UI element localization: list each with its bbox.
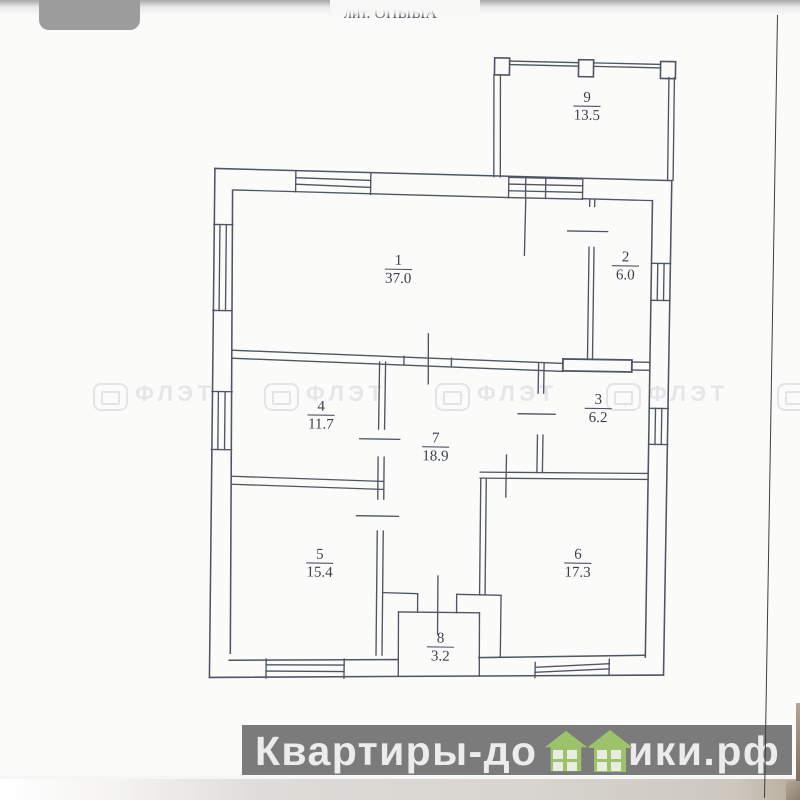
svg-text:1: 1 bbox=[395, 253, 403, 269]
svg-text:17.3: 17.3 bbox=[564, 564, 590, 580]
svg-text:8: 8 bbox=[437, 630, 445, 646]
svg-text:37.0: 37.0 bbox=[385, 271, 411, 287]
svg-text:4: 4 bbox=[317, 399, 325, 415]
svg-text:5: 5 bbox=[316, 547, 324, 563]
svg-text:6.0: 6.0 bbox=[616, 267, 635, 283]
svg-text:6: 6 bbox=[574, 547, 582, 563]
svg-text:6.2: 6.2 bbox=[589, 410, 608, 426]
svg-text:13.5: 13.5 bbox=[574, 108, 600, 124]
svg-text:3.2: 3.2 bbox=[431, 648, 450, 664]
svg-text:7: 7 bbox=[432, 430, 440, 446]
svg-text:9: 9 bbox=[583, 90, 591, 106]
svg-text:2: 2 bbox=[622, 249, 630, 265]
svg-text:18.9: 18.9 bbox=[422, 448, 448, 464]
svg-text:3: 3 bbox=[594, 392, 602, 408]
svg-text:15.4: 15.4 bbox=[306, 564, 333, 580]
svg-text:11.7: 11.7 bbox=[308, 416, 334, 432]
